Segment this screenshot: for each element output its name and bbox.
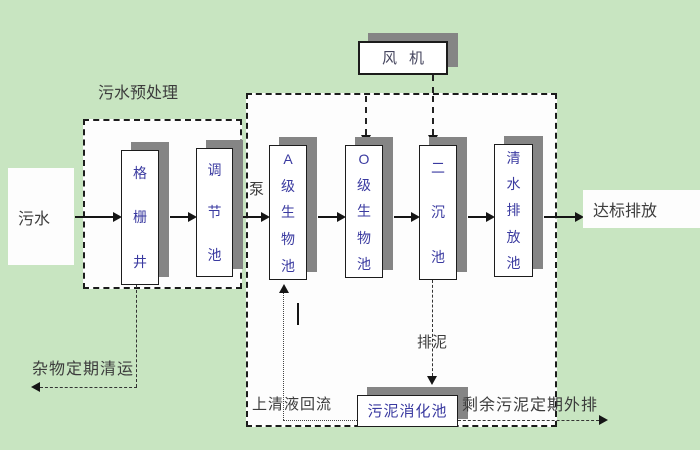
sludge-digester-label: 污泥消化池 [358,396,457,426]
blower-box: 风机 [358,41,448,75]
influent-label: 污水 [18,205,50,229]
influent-box: 污水 [8,168,74,265]
gridwell-to-regulating-arrow [170,216,188,218]
clear-water-tank: 清水排放池 [494,144,533,277]
pump-label: 泵 [249,181,264,198]
influent-arrow [75,216,113,218]
abio-to-obio-arrow [318,216,337,218]
sludge-digester-box: 污泥消化池 [357,395,458,427]
secondary-clarifier-label: 二沉池 [420,146,456,279]
regulating-to-abio-arrow [243,216,261,218]
pretreatment-zone-label: 污水预处理 [98,85,178,103]
a-bio-tank-label: A级生物池 [270,146,306,279]
blower-to-obio-arrow [365,96,367,135]
o-bio-tank-label: O级生物池 [346,146,382,277]
clarifier-to-clearwater-arrow [468,216,486,218]
supernatant-line-horizontal [283,420,357,421]
blower-to-clarifier-arrow [432,96,434,135]
blower-drop-line [432,75,434,93]
sludge-discharge-arrow [432,280,433,376]
debris-line-vertical [136,285,137,387]
obio-to-clarifier-arrow [394,216,411,218]
blower-label: 风机 [360,43,446,73]
debris-removal-arrow [40,387,137,388]
diagram-stage: 污水 达标排放 格栅井 调节池 A级生物池 O级生物池 二沉池 清水排放池 风机… [0,0,700,450]
excess-sludge-arrow [458,420,599,421]
effluent-arrow [544,216,575,218]
effluent-label: 达标排放 [593,197,657,221]
cursor-mark [297,303,299,325]
debris-removal-label: 杂物定期清运 [32,361,134,379]
excess-sludge-label: 剩余污泥定期外排 [462,397,598,415]
o-bio-tank: O级生物池 [345,145,383,278]
regulating-tank-label: 调节池 [197,149,232,276]
grid-well-tank: 格栅井 [121,150,159,285]
a-bio-tank: A级生物池 [269,145,307,280]
secondary-clarifier-tank: 二沉池 [419,145,457,280]
regulating-tank: 调节池 [196,148,233,277]
supernatant-return-label: 上清液回流 [252,396,332,413]
sludge-discharge-label: 排泥 [417,334,447,351]
effluent-box: 达标排放 [583,190,700,228]
clear-water-tank-label: 清水排放池 [495,145,532,276]
grid-well-label: 格栅井 [122,151,158,284]
